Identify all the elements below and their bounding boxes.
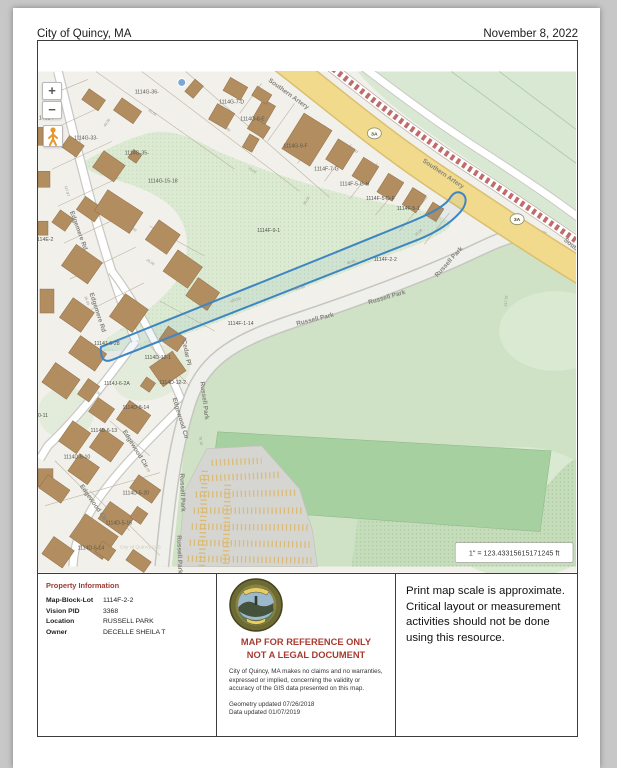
street-view-pegman[interactable]: [43, 125, 63, 147]
map-label-parcel: 1114D-5-10: [64, 455, 91, 461]
quincy-seal: [229, 578, 283, 632]
pegman-icon: [44, 126, 62, 146]
property-info-panel: Property Information Map-Block-Lot 1114F…: [38, 574, 217, 736]
map-label-parcel: 1114F-9-1: [257, 228, 280, 234]
map-document-frame: City of Quincy GIS Southern ArterySouthe…: [37, 40, 578, 737]
document-header: City of Quincy, MA November 8, 2022: [37, 22, 578, 40]
map-label-parcel: 1114G-15-18: [148, 178, 178, 184]
map-marker-dot[interactable]: [178, 78, 186, 86]
map-viewport[interactable]: City of Quincy GIS Southern ArterySouthe…: [38, 71, 576, 573]
print-note-text: Print map scale is approximate. Critical…: [406, 584, 567, 646]
geometry-updated: Geometry updated 07/26/2018: [229, 701, 383, 710]
map-label-parcel: 1114D-5-14: [78, 546, 105, 552]
route-shield-label: 3A: [514, 217, 521, 223]
update-dates: Geometry updated 07/26/2018 Data updated…: [229, 701, 383, 719]
map-label-parcel: 1114D-12-2: [159, 380, 186, 386]
map-label-street: Russell Park: [178, 473, 186, 512]
header-date: November 8, 2022: [483, 28, 578, 40]
data-updated: Data updated 01/07/2019: [229, 709, 383, 718]
map-label-parcel: 1114D-5-16: [106, 521, 133, 527]
disclaimer-panel: MAP FOR REFERENCE ONLY NOT A LEGAL DOCUM…: [217, 574, 396, 736]
map-label-street: Russell Park: [175, 535, 183, 573]
property-info-heading: Property Information: [46, 581, 208, 590]
map-label-parcel: 1114G-35-: [125, 150, 149, 156]
disclaimer-body: City of Quincy, MA makes no claims and n…: [229, 668, 383, 694]
map-label-parcel: 1114J-6-2A: [104, 381, 131, 387]
map-label-parcel: 1114G-36-: [135, 89, 159, 95]
property-row-location: Location RUSSELL PARK: [46, 618, 208, 625]
map-label-parcel: 1114G-9-F: [283, 143, 307, 149]
map-label-parcel: 1114F-7-G: [314, 166, 338, 172]
map-label-parcel: 1114F-1-14: [228, 321, 254, 327]
print-note-panel: Print map scale is approximate. Critical…: [396, 574, 577, 736]
map-label-parcel: 0-11: [38, 413, 48, 419]
zoom-out-button[interactable]: −: [42, 101, 62, 119]
scale-box: 1" = 123.43315615171245 ft: [455, 543, 573, 563]
map-label-parcel: 1114G-8-E: [240, 116, 265, 122]
map-canvas[interactable]: City of Quincy GIS Southern ArterySouthe…: [38, 71, 576, 573]
map-label-parcel: 1114F-2-2: [374, 257, 397, 263]
map-label-parcel: 1114D-6-13: [91, 428, 118, 434]
map-label-parcel: 1114D-12-1: [144, 355, 171, 361]
page-title: City of Quincy, MA: [37, 28, 131, 40]
property-row-vision-pid: Vision PID 3368: [46, 608, 208, 615]
reference-only-title: MAP FOR REFERENCE ONLY NOT A LEGAL DOCUM…: [229, 636, 383, 661]
scale-label: 1" = 123.43315615171245 ft: [469, 550, 560, 558]
route-shield-label: 3A: [371, 131, 378, 137]
map-label-parcel: 1114F-5-D-F: [366, 196, 395, 202]
map-label-parcel: 1114J-6-28: [94, 341, 120, 347]
map-label-parcel: 1114F-5-G-H: [340, 181, 370, 187]
map-label-parcel: 1114D-8-14: [122, 405, 149, 411]
info-row: Property Information Map-Block-Lot 1114F…: [38, 573, 577, 736]
property-row-owner: Owner DECELLE SHEILA T: [46, 629, 208, 636]
zoom-in-button[interactable]: +: [42, 82, 62, 100]
map-label-parcel: 1114F-5-1: [397, 206, 420, 212]
map-label-parcel: 1114G-33-: [74, 135, 98, 141]
map-label-parcel: 1114E-2: [38, 237, 54, 243]
document-page: City of Quincy, MA November 8, 2022: [13, 8, 600, 768]
map-label-parcel: 1114G-7-D: [219, 99, 244, 105]
basemap-credit: City of Quincy GIS: [120, 545, 162, 551]
map-label-parcel: 1114D-5-20: [122, 491, 149, 497]
property-row-map-block-lot: Map-Block-Lot 1114F-2-2: [46, 597, 208, 604]
